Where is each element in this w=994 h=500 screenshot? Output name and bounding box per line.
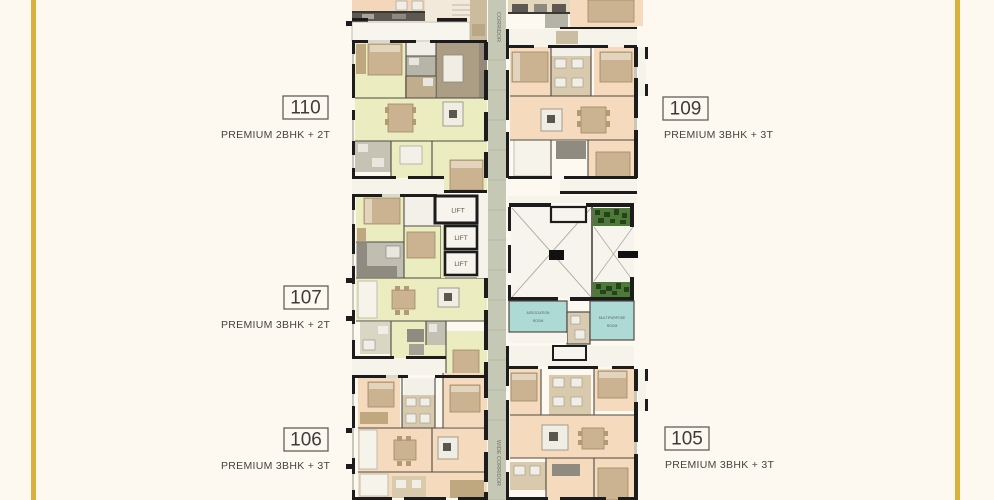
svg-text:ASSOCIATION: ASSOCIATION: [527, 311, 550, 315]
svg-text:WIDE CORRIDOR: WIDE CORRIDOR: [495, 440, 501, 486]
svg-text:PREMIUM 2BHK + 2T: PREMIUM 2BHK + 2T: [221, 129, 331, 141]
svg-text:110: 110: [290, 98, 320, 119]
svg-text:LIFT: LIFT: [451, 208, 464, 215]
svg-text:105: 105: [671, 429, 703, 450]
svg-text:PREMIUM 3BHK + 2T: PREMIUM 3BHK + 2T: [221, 319, 331, 331]
svg-text:CORRIDOR: CORRIDOR: [495, 12, 501, 42]
svg-text:PREMIUM 3BHK + 3T: PREMIUM 3BHK + 3T: [664, 129, 774, 141]
svg-text:ROOM: ROOM: [607, 324, 618, 328]
svg-text:107: 107: [290, 288, 322, 309]
svg-text:MULTIPURPOSE: MULTIPURPOSE: [599, 316, 626, 320]
svg-text:106: 106: [290, 430, 322, 451]
svg-text:LIFT: LIFT: [454, 261, 467, 268]
svg-text:ROOM: ROOM: [533, 319, 544, 323]
svg-text:109: 109: [670, 99, 702, 120]
svg-text:LIFT: LIFT: [454, 235, 467, 242]
svg-text:PREMIUM 3BHK + 3T: PREMIUM 3BHK + 3T: [221, 460, 331, 472]
svg-text:PREMIUM 3BHK + 3T: PREMIUM 3BHK + 3T: [665, 459, 775, 471]
